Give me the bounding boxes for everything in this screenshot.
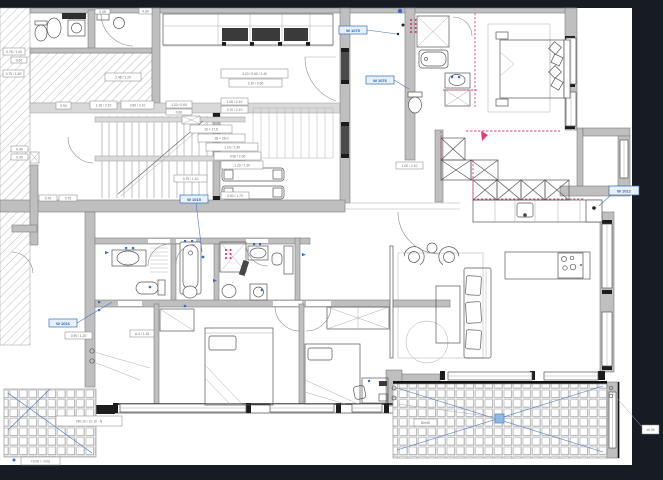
dim-label: 1.00 / 2.10 [221, 98, 248, 105]
svg-text:W 1012: W 1012 [617, 189, 632, 194]
svg-text:0.90 / 2.30: 0.90 / 2.30 [230, 155, 246, 159]
svg-text:0.60: 0.60 [16, 59, 23, 63]
dim-label: 0.60 [166, 109, 192, 115]
dim-label: ±0.00 [642, 425, 659, 434]
dim-label: 1.20 / 0.60 [166, 101, 192, 108]
svg-text:0.45: 0.45 [99, 10, 106, 14]
svg-text:0.70: 0.70 [45, 197, 52, 201]
dim-label: 2.10 / 0.60 [229, 79, 282, 87]
dim-label: 0.76 / 1.40 [3, 48, 25, 55]
svg-text:0.75 / 1.40: 0.75 / 1.40 [6, 72, 22, 76]
dim-label: +0.00 / −0.02 [21, 457, 60, 465]
svg-text:0.40: 0.40 [16, 156, 23, 160]
svg-text:1.00 / 2.10: 1.00 / 2.10 [227, 100, 243, 104]
dim-label: 16 × 17.6 [190, 125, 232, 133]
svg-text:0.60: 0.60 [142, 10, 149, 14]
dim-label: 0.75 / 1.40 [3, 70, 24, 77]
svg-text:0.70 / 2.10: 0.70 / 2.10 [227, 108, 243, 112]
dim-label: 60×60 [414, 419, 437, 426]
svg-text:2.10 / 0.60: 2.10 / 0.60 [248, 82, 264, 86]
svg-text:0.75 / 1.10: 0.75 / 1.10 [183, 177, 199, 181]
dim-label: 0.70 / 2.10 [221, 106, 248, 113]
dim-label: 0.70 [59, 195, 77, 201]
svg-text:0.90: 0.90 [60, 104, 67, 108]
dim-label: 0.60 [139, 8, 152, 14]
svg-text:W 1015: W 1015 [187, 197, 202, 202]
svg-text:1.00 / 2.10: 1.00 / 2.10 [402, 164, 418, 168]
stair-direction-box [182, 116, 200, 124]
dim-label: 0.90 [56, 102, 71, 109]
dim-label: 1.26 / 2.10 [90, 101, 117, 109]
floor-plan-canvas: W 1075 W 1076 W 1015 W 1016 W 1012 2.46 … [0, 0, 663, 480]
dim-label: 1.10 / 2.30 [206, 143, 258, 151]
svg-text:W 1075: W 1075 [346, 28, 361, 33]
svg-text:0.60 / 1.70: 0.60 / 1.70 [227, 194, 243, 198]
svg-text:1.20 / 0.60: 1.20 / 0.60 [171, 103, 187, 107]
drain-point [495, 414, 504, 423]
plumbing-tag: W 1076 [366, 76, 394, 84]
kitchen-island [505, 252, 590, 279]
dim-label: 240.10 / 10.10 · N [56, 416, 122, 426]
dim-label: 0.90 / 2.30 [214, 152, 261, 160]
svg-text:2.46 / 1.20: 2.46 / 1.20 [115, 76, 131, 80]
svg-text:0.40: 0.40 [16, 148, 23, 152]
svg-text:A-4 / 1.15: A-4 / 1.15 [135, 332, 149, 336]
dim-label: 0.40 [11, 154, 28, 160]
floor-plan-screenshot: W 1075 W 1076 W 1015 W 1016 W 1012 2.46 … [0, 0, 663, 480]
dim-label: 28 × 26.0 [198, 134, 245, 142]
dim-label: 0.70 [39, 195, 57, 201]
dim-label: 0.75 / 1.10 [174, 175, 207, 182]
plumbing-tag: W 1015 [180, 195, 208, 203]
svg-text:1.26 / 2.10: 1.26 / 2.10 [96, 104, 112, 108]
svg-text:60×60: 60×60 [421, 421, 430, 425]
bath-2 [176, 242, 201, 298]
dim-label: 0.45 [95, 9, 110, 14]
svg-text:28 × 26.0: 28 × 26.0 [215, 137, 229, 141]
svg-text:1.10 / 2.30: 1.10 / 2.30 [224, 146, 240, 150]
svg-text:0.90 / 1.20: 0.90 / 1.20 [71, 334, 87, 338]
svg-text:3.20 / 0.60 / 2.40: 3.20 / 0.60 / 2.40 [242, 72, 267, 76]
dim-label: 0.80 / 2.10 [121, 101, 154, 109]
svg-text:16 × 17.6: 16 × 17.6 [204, 128, 218, 132]
dim-label: 0.40 [11, 146, 28, 152]
dim-label: 3.20 / 0.60 / 2.40 [221, 69, 288, 78]
svg-text:W 1016: W 1016 [56, 321, 71, 326]
plumbing-tag: W 1016 [49, 319, 77, 327]
dim-label: 1.20 / 2.30 [221, 161, 263, 169]
plumbing-tag: W 1012 [609, 186, 639, 195]
dim-label: 1.00 / 2.10 [396, 162, 423, 169]
dim-label: 0.90 / 1.20 [65, 332, 92, 339]
dim-label: 0.60 / 1.70 [221, 192, 249, 199]
svg-text:0.80 / 2.10: 0.80 / 2.10 [130, 104, 146, 108]
svg-text:240.10 / 10.10 · N: 240.10 / 10.10 · N [76, 420, 103, 424]
dim-label: 0.60 [11, 57, 27, 63]
svg-text:1.20 / 2.30: 1.20 / 2.30 [234, 164, 250, 168]
svg-text:±0.00: ±0.00 [646, 428, 654, 432]
shaft-box [30, 152, 39, 163]
dim-label: 2.46 / 1.20 [105, 73, 141, 81]
svg-text:0.60: 0.60 [176, 111, 183, 115]
svg-text:0.70: 0.70 [65, 197, 72, 201]
svg-text:W 1076: W 1076 [373, 78, 388, 83]
plumbing-tag: W 1075 [339, 26, 367, 34]
dim-label: A-4 / 1.15 [130, 330, 154, 337]
svg-text:0.76 / 1.40: 0.76 / 1.40 [6, 50, 22, 54]
svg-text:+0.00 / −0.02: +0.00 / −0.02 [31, 460, 51, 464]
